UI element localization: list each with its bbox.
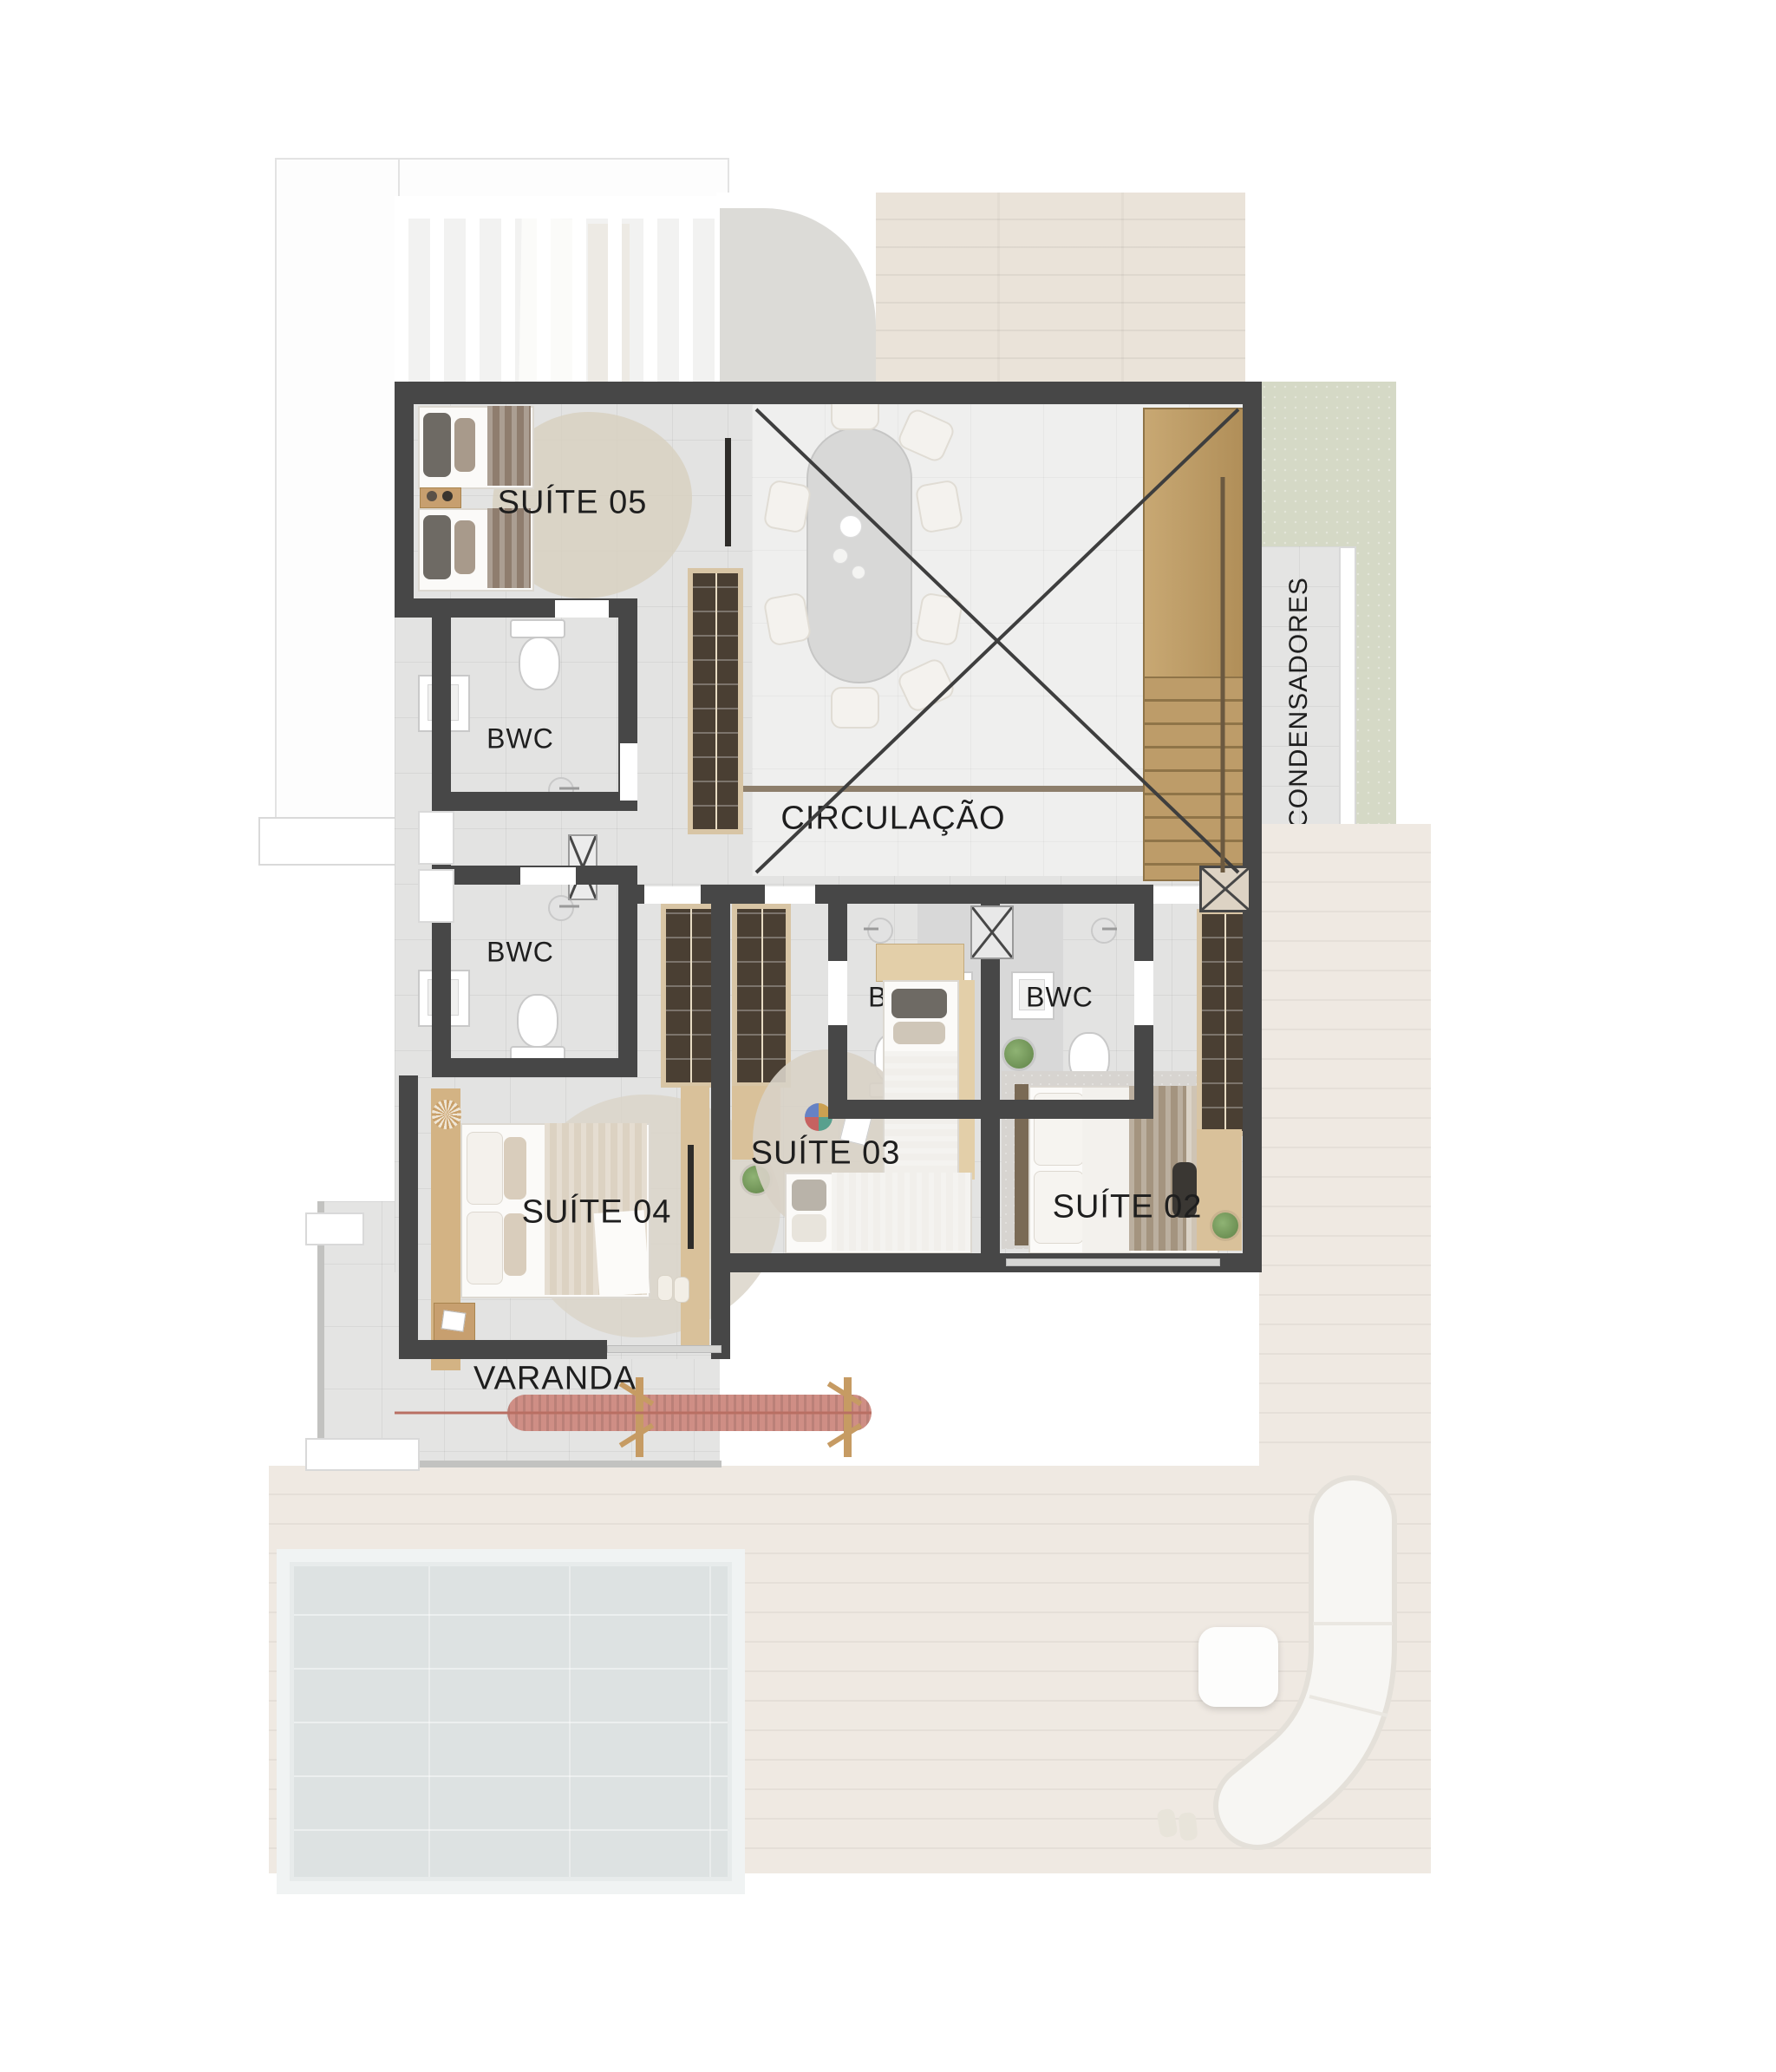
toilet-icon	[519, 637, 560, 690]
wall	[399, 1075, 418, 1359]
door-opening	[1134, 961, 1153, 1025]
wall	[395, 382, 414, 618]
side-table	[1198, 1627, 1278, 1707]
wall	[395, 382, 1262, 404]
dining-chair	[915, 479, 964, 533]
door-opening	[520, 867, 576, 885]
blanket	[487, 406, 531, 486]
nightstand-decor	[442, 491, 453, 501]
room-label-bwc-4: BWC	[1026, 982, 1094, 1014]
single-bed	[418, 406, 534, 489]
pillow	[423, 413, 451, 477]
wall	[618, 885, 644, 904]
wall	[711, 904, 730, 1272]
slippers-icon	[674, 1277, 689, 1303]
hammock-stand	[636, 1377, 643, 1457]
sunburst-decor	[432, 1100, 461, 1129]
window	[418, 811, 454, 865]
deck-top-right	[876, 193, 1245, 382]
table-decor	[839, 515, 862, 538]
sliding-door	[1006, 1258, 1220, 1266]
dresser-tv	[681, 1086, 709, 1346]
pillow	[467, 1132, 503, 1205]
floor-plan: CONDENSADORES SUÍTE 05	[0, 0, 1776, 2072]
room-label-varanda: VARANDA	[473, 1361, 637, 1398]
hammock-stand	[844, 1377, 852, 1457]
door-opening	[828, 961, 847, 1025]
room-label-circulacao: CIRCULAÇÃO	[780, 801, 1005, 838]
stairs-upper-flight	[1143, 408, 1246, 680]
door-opening	[555, 600, 609, 618]
toilet-icon	[510, 619, 565, 638]
windowsill-left	[258, 817, 414, 866]
nightstand	[420, 487, 461, 508]
room-label-condensadores: CONDENSADORES	[1284, 577, 1314, 828]
dining-table	[806, 427, 912, 683]
table-decor	[852, 565, 865, 579]
pergola-frame-top	[395, 196, 720, 219]
single-bed	[785, 1173, 972, 1254]
bed-frame	[957, 980, 975, 1180]
sandals-icon	[1178, 1812, 1198, 1841]
pillow	[454, 520, 475, 574]
room-label-suite-05: SUÍTE 05	[498, 485, 648, 522]
pool	[277, 1549, 745, 1894]
pergola-slats-icon	[395, 217, 720, 392]
pillow	[891, 989, 947, 1018]
room-label-bwc-1: BWC	[486, 723, 554, 755]
varanda-sill-bottom	[305, 1438, 420, 1471]
room-label-suite-04: SUÍTE 04	[522, 1194, 672, 1232]
slippers-icon	[657, 1275, 673, 1301]
wardrobe	[732, 904, 791, 1088]
window	[418, 869, 454, 923]
dining-chair	[915, 592, 964, 646]
pergola-frame-left	[395, 196, 408, 392]
shower-head-icon	[867, 918, 893, 944]
pillow	[792, 1180, 826, 1211]
blanket	[832, 1173, 970, 1251]
plant-icon	[1212, 1212, 1238, 1239]
pillow	[893, 1022, 945, 1044]
table-decor	[832, 548, 848, 564]
pillow	[423, 515, 451, 579]
wall	[399, 1340, 607, 1359]
wall	[981, 1100, 1000, 1272]
wall	[432, 792, 618, 811]
pillow	[454, 418, 475, 472]
tv-panel	[725, 438, 731, 546]
pillow	[792, 1214, 826, 1242]
dining-chair	[763, 479, 813, 533]
magazine	[441, 1310, 467, 1331]
shelf	[876, 944, 964, 982]
wall	[1243, 382, 1262, 882]
dining-chair	[831, 687, 879, 729]
room-label-suite-03: SUÍTE 03	[751, 1135, 901, 1173]
hammock	[507, 1395, 872, 1431]
deck-right	[1259, 824, 1431, 1466]
dining-chair	[763, 592, 813, 646]
pillow	[467, 1212, 503, 1284]
wall	[701, 885, 765, 904]
plant-icon	[1004, 1039, 1034, 1069]
sliding-door	[607, 1345, 721, 1353]
wardrobe	[688, 568, 743, 834]
glass-window-x	[1199, 866, 1251, 912]
nightstand-decor	[427, 491, 437, 501]
stairs-treads	[1143, 677, 1246, 881]
room-label-suite-02: SUÍTE 02	[1053, 1189, 1203, 1226]
door-opening	[620, 743, 637, 801]
room-label-bwc-2: BWC	[486, 937, 554, 969]
pillow	[504, 1137, 526, 1199]
toilet-icon	[517, 994, 558, 1048]
wall	[1243, 882, 1262, 1272]
door-opening	[765, 886, 815, 904]
roof-panel-left	[275, 158, 400, 858]
roof-curve-edge	[716, 193, 893, 408]
shower-head-icon	[1091, 918, 1117, 944]
varanda-sill-top	[305, 1212, 364, 1245]
wall	[432, 1058, 637, 1077]
door-opening	[644, 886, 701, 904]
glass-partition-x	[970, 905, 1014, 959]
tv-panel	[688, 1145, 694, 1249]
door-opening	[1153, 886, 1199, 904]
